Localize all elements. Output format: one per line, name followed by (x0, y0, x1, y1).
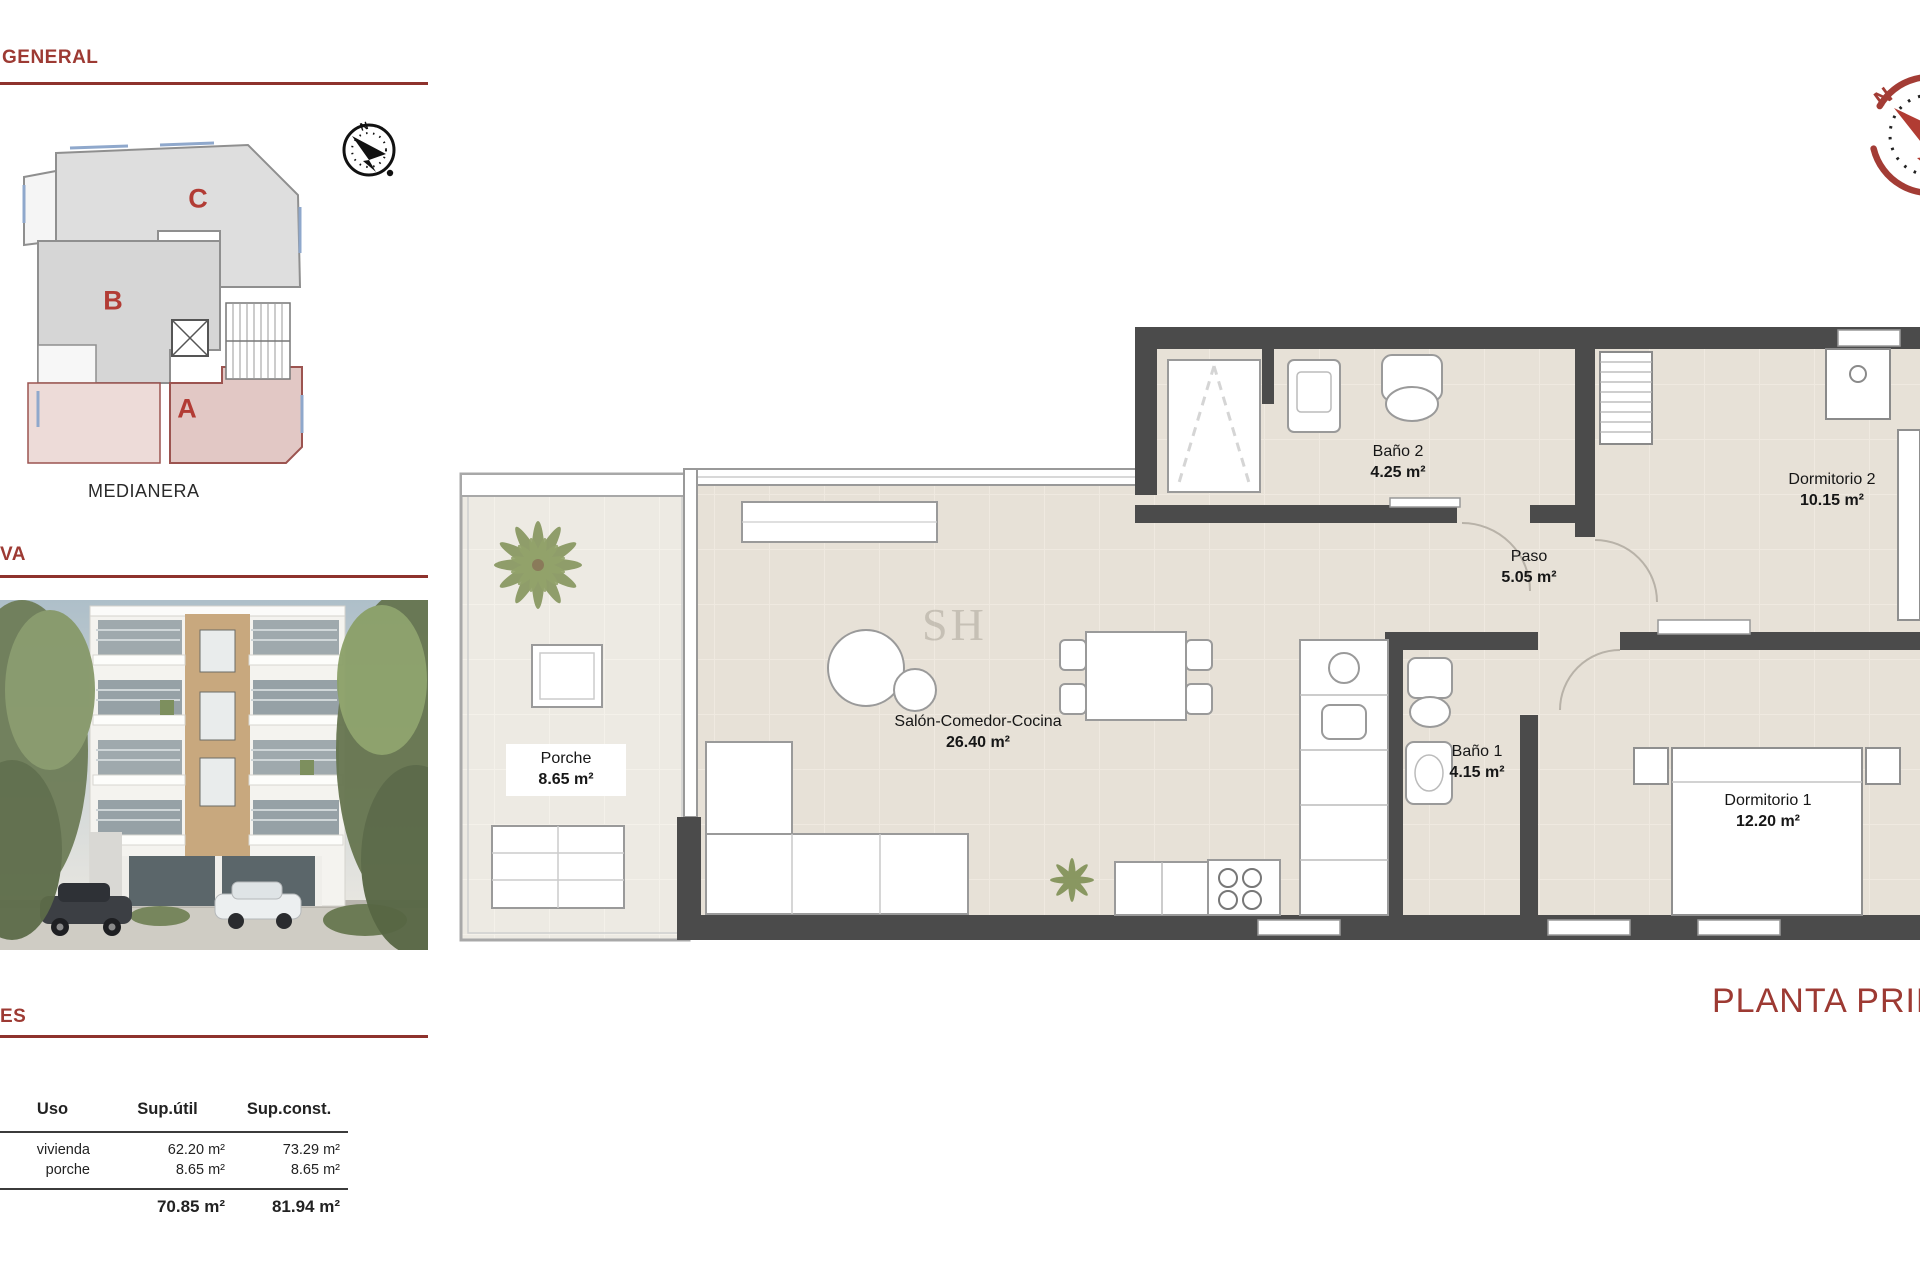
rule-view (0, 575, 428, 578)
site-compass-icon: N (336, 116, 402, 182)
room-label-dormitorio1: Dormitorio 1 12.20 m² (1678, 791, 1858, 833)
section-heading-view: VA (0, 544, 26, 566)
watermark: SH (922, 598, 987, 651)
table-row-porche-util: 8.65 m² (105, 1162, 225, 1178)
table-rule-bottom (0, 1188, 348, 1190)
block-c-label: C (188, 184, 208, 215)
floor-plan-drawing (453, 280, 1920, 960)
table-row-porche-const: 8.65 m² (230, 1162, 340, 1178)
medianera-label: MEDIANERA (88, 481, 200, 502)
table-total-util: 70.85 m² (105, 1197, 225, 1217)
table-row-porche-uso: porche (0, 1162, 90, 1178)
room-label-porche: Porche 8.65 m² (506, 744, 626, 796)
block-a-label: A (177, 394, 197, 425)
room-label-dormitorio2: Dormitorio 2 10.15 m² (1742, 470, 1920, 512)
room-label-paso: Paso 5.05 m² (1449, 547, 1609, 589)
table-row-vivienda-const: 73.29 m² (230, 1142, 340, 1158)
plan-sheet: GENERAL C B A (0, 0, 1920, 1280)
section-heading-areas: ES (0, 1006, 26, 1028)
floor-plan (453, 280, 1920, 960)
block-b-label: B (103, 286, 123, 317)
room-label-bano2: Baño 2 4.25 m² (1318, 442, 1478, 484)
table-header-sup-util: Sup.útil (105, 1100, 230, 1119)
plan-title: PLANTA PRIME (1712, 982, 1920, 1021)
table-header-sup-const: Sup.const. (230, 1100, 348, 1119)
room-label-bano1: Baño 1 4.15 m² (1397, 742, 1557, 784)
rule-general (0, 82, 428, 85)
table-row-vivienda-util: 62.20 m² (105, 1142, 225, 1158)
north-compass-icon: N (1848, 58, 1920, 208)
table-total-const: 81.94 m² (230, 1197, 340, 1217)
room-label-salon: Salón-Comedor-Cocina 26.40 m² (858, 712, 1098, 754)
section-heading-general: GENERAL (2, 47, 98, 69)
table-header-uso: Uso (0, 1100, 105, 1119)
table-rule-top (0, 1131, 348, 1133)
site-compass-n: N (359, 120, 370, 134)
table-row-vivienda-uso: vivienda (0, 1142, 90, 1158)
building-render (0, 600, 428, 950)
rule-areas (0, 1035, 428, 1038)
